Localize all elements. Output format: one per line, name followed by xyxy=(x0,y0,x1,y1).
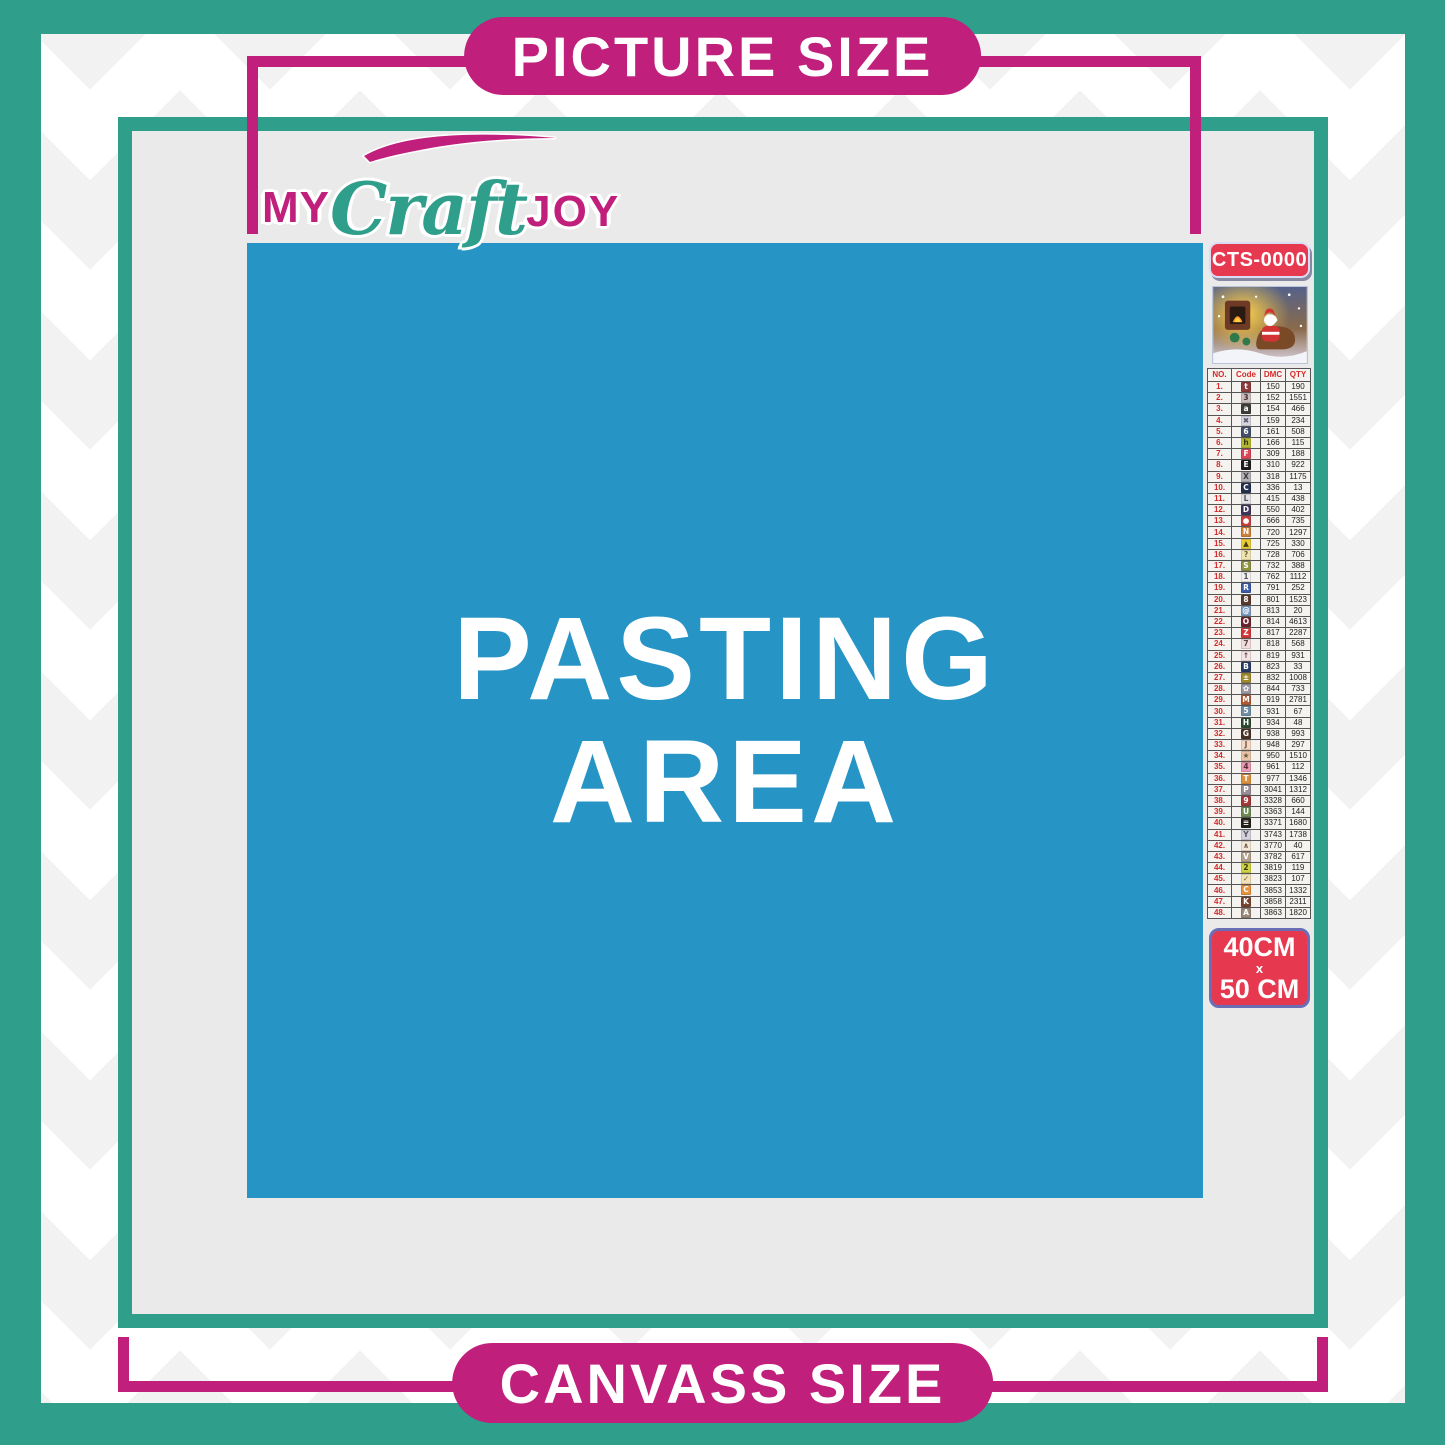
table-header-row: NO. Code DMC QTY xyxy=(1208,369,1311,382)
qty-value: 297 xyxy=(1286,740,1311,751)
qty-value: 1346 xyxy=(1286,773,1311,784)
row-number: 32. xyxy=(1208,728,1232,739)
qty-value: 466 xyxy=(1286,404,1311,415)
dmc-value: 801 xyxy=(1261,594,1286,605)
brand-logo: MYCraftJOY xyxy=(262,138,562,238)
symbol-chip: ± xyxy=(1241,673,1251,683)
code-cell: 5 xyxy=(1232,706,1261,717)
table-row: 48.A38631820 xyxy=(1208,907,1311,918)
dmc-value: 814 xyxy=(1261,616,1286,627)
dmc-value: 3041 xyxy=(1261,784,1286,795)
col-header-no: NO. xyxy=(1208,369,1232,382)
table-row: 7.F309188 xyxy=(1208,449,1311,460)
code-cell: 3 xyxy=(1232,393,1261,404)
row-number: 1. xyxy=(1208,382,1232,393)
code-cell: C xyxy=(1232,482,1261,493)
table-row: 6.h166115 xyxy=(1208,437,1311,448)
qty-value: 1738 xyxy=(1286,829,1311,840)
dmc-value: 728 xyxy=(1261,549,1286,560)
symbol-chip: C xyxy=(1241,483,1251,493)
symbol-chip: F xyxy=(1241,449,1251,459)
dmc-value: 336 xyxy=(1261,482,1286,493)
qty-value: 190 xyxy=(1286,382,1311,393)
code-cell: A xyxy=(1232,907,1261,918)
qty-value: 40 xyxy=(1286,840,1311,851)
dmc-value: 844 xyxy=(1261,684,1286,695)
symbol-chip: R xyxy=(1241,583,1251,593)
canvass-size-label: CANVASS SIZE xyxy=(452,1343,994,1423)
table-row: 41.Y37431738 xyxy=(1208,829,1311,840)
table-row: 18.17621112 xyxy=(1208,572,1311,583)
code-cell: L xyxy=(1232,493,1261,504)
row-number: 6. xyxy=(1208,437,1232,448)
row-number: 26. xyxy=(1208,661,1232,672)
qty-value: 188 xyxy=(1286,449,1311,460)
qty-value: 2781 xyxy=(1286,695,1311,706)
row-number: 48. xyxy=(1208,907,1232,918)
symbol-chip: U xyxy=(1241,807,1251,817)
qty-value: 115 xyxy=(1286,437,1311,448)
symbol-chip: B xyxy=(1241,662,1251,672)
dmc-value: 161 xyxy=(1261,426,1286,437)
code-cell: ∧ xyxy=(1232,840,1261,851)
code-cell: 1 xyxy=(1232,572,1261,583)
row-number: 20. xyxy=(1208,594,1232,605)
dmc-value: 720 xyxy=(1261,527,1286,538)
table-row: 43.V3782617 xyxy=(1208,851,1311,862)
logo-text-my: MY xyxy=(262,183,330,232)
row-number: 30. xyxy=(1208,706,1232,717)
code-cell: @ xyxy=(1232,605,1261,616)
qty-value: 1332 xyxy=(1286,885,1311,896)
qty-value: 48 xyxy=(1286,717,1311,728)
symbol-chip: A xyxy=(1241,908,1251,918)
dmc-value: 550 xyxy=(1261,505,1286,516)
row-number: 4. xyxy=(1208,415,1232,426)
table-row: 5.6161508 xyxy=(1208,426,1311,437)
size-separator-text: x xyxy=(1256,962,1263,975)
qty-value: 67 xyxy=(1286,706,1311,717)
row-number: 28. xyxy=(1208,684,1232,695)
dmc-value: 832 xyxy=(1261,672,1286,683)
canvas-size-badge: 40CM x 50 CM xyxy=(1209,928,1310,1008)
dmc-value: 977 xyxy=(1261,773,1286,784)
symbol-chip: G xyxy=(1241,729,1251,739)
dmc-value: 3363 xyxy=(1261,807,1286,818)
qty-value: 568 xyxy=(1286,639,1311,650)
qty-value: 4613 xyxy=(1286,616,1311,627)
dmc-value: 961 xyxy=(1261,762,1286,773)
code-cell: K xyxy=(1232,896,1261,907)
symbol-chip: ↑ xyxy=(1241,651,1251,661)
symbol-chip: 2 xyxy=(1241,863,1251,873)
qty-value: 330 xyxy=(1286,538,1311,549)
symbol-chip: C xyxy=(1241,885,1251,895)
code-cell: 4 xyxy=(1232,762,1261,773)
row-number: 17. xyxy=(1208,561,1232,572)
symbol-chip: Y xyxy=(1241,830,1251,840)
code-cell: 8 xyxy=(1232,594,1261,605)
design-preview-image xyxy=(1212,286,1308,364)
code-cell: M xyxy=(1232,695,1261,706)
code-cell: O xyxy=(1232,616,1261,627)
table-row: 34.★9501510 xyxy=(1208,751,1311,762)
code-cell: ● xyxy=(1232,516,1261,527)
dmc-value: 318 xyxy=(1261,471,1286,482)
code-cell: D xyxy=(1232,505,1261,516)
table-row: 2.31521551 xyxy=(1208,393,1311,404)
table-row: 26.B82333 xyxy=(1208,661,1311,672)
code-cell: t xyxy=(1232,382,1261,393)
row-number: 37. xyxy=(1208,784,1232,795)
code-cell: B xyxy=(1232,661,1261,672)
pasting-area: PASTING AREA xyxy=(247,243,1203,1198)
code-cell: H xyxy=(1232,717,1261,728)
table-row: 8.E310922 xyxy=(1208,460,1311,471)
dmc-value: 3819 xyxy=(1261,863,1286,874)
qty-value: 617 xyxy=(1286,851,1311,862)
code-cell: N xyxy=(1232,527,1261,538)
row-number: 23. xyxy=(1208,628,1232,639)
dmc-color-table: NO. Code DMC QTY 1.t1501902.315215513.a1… xyxy=(1207,368,1311,919)
table-row: 21.@81320 xyxy=(1208,605,1311,616)
code-cell: 9 xyxy=(1232,795,1261,806)
dmc-value: 415 xyxy=(1261,493,1286,504)
code-cell: ✓ xyxy=(1232,874,1261,885)
sku-text: CTS-0000 xyxy=(1212,249,1307,272)
dmc-value: 725 xyxy=(1261,538,1286,549)
code-cell: ✿ xyxy=(1232,684,1261,695)
code-cell: 7 xyxy=(1232,639,1261,650)
code-cell: ≡ xyxy=(1232,818,1261,829)
qty-value: 438 xyxy=(1286,493,1311,504)
symbol-chip: S xyxy=(1241,561,1251,571)
dmc-value: 3371 xyxy=(1261,818,1286,829)
table-row: 36.T9771346 xyxy=(1208,773,1311,784)
symbol-chip: E xyxy=(1241,460,1251,470)
symbol-chip: J xyxy=(1241,740,1251,750)
row-number: 44. xyxy=(1208,863,1232,874)
table-row: 19.R791252 xyxy=(1208,583,1311,594)
dmc-value: 666 xyxy=(1261,516,1286,527)
symbol-chip: ✿ xyxy=(1241,684,1251,694)
table-row: 20.88011523 xyxy=(1208,594,1311,605)
symbol-chip: ∧ xyxy=(1241,841,1251,851)
size-height-text: 50 CM xyxy=(1220,976,1300,1003)
dmc-value: 3770 xyxy=(1261,840,1286,851)
dmc-value: 950 xyxy=(1261,751,1286,762)
code-cell: 2 xyxy=(1232,863,1261,874)
dmc-value: 3328 xyxy=(1261,795,1286,806)
qty-value: 33 xyxy=(1286,661,1311,672)
qty-value: 107 xyxy=(1286,874,1311,885)
qty-value: 508 xyxy=(1286,426,1311,437)
dmc-value: 818 xyxy=(1261,639,1286,650)
symbol-chip: 6 xyxy=(1241,427,1251,437)
qty-value: 252 xyxy=(1286,583,1311,594)
symbol-chip: H xyxy=(1241,718,1251,728)
table-row: 3.a154466 xyxy=(1208,404,1311,415)
dmc-value: 310 xyxy=(1261,460,1286,471)
symbol-chip: K xyxy=(1241,897,1251,907)
table-row: 32.G938993 xyxy=(1208,728,1311,739)
qty-value: 119 xyxy=(1286,863,1311,874)
qty-value: 733 xyxy=(1286,684,1311,695)
qty-value: 2311 xyxy=(1286,896,1311,907)
table-row: 16.?728706 xyxy=(1208,549,1311,560)
table-row: 17.S732388 xyxy=(1208,561,1311,572)
row-number: 22. xyxy=(1208,616,1232,627)
row-number: 41. xyxy=(1208,829,1232,840)
row-number: 42. xyxy=(1208,840,1232,851)
dmc-value: 938 xyxy=(1261,728,1286,739)
table-row: 29.M9192781 xyxy=(1208,695,1311,706)
dmc-value: 3782 xyxy=(1261,851,1286,862)
code-cell: a xyxy=(1232,404,1261,415)
code-cell: ★ xyxy=(1232,751,1261,762)
table-row: 39.U3363144 xyxy=(1208,807,1311,818)
table-row: 31.H93448 xyxy=(1208,717,1311,728)
code-cell: J xyxy=(1232,740,1261,751)
dmc-value: 817 xyxy=(1261,628,1286,639)
dmc-value: 3863 xyxy=(1261,907,1286,918)
table-row: 38.93328660 xyxy=(1208,795,1311,806)
symbol-chip: L xyxy=(1241,494,1251,504)
row-number: 40. xyxy=(1208,818,1232,829)
size-width-text: 40CM xyxy=(1223,934,1295,961)
canvass-size-bracket-left-tick xyxy=(118,1337,129,1392)
row-number: 9. xyxy=(1208,471,1232,482)
dmc-value: 819 xyxy=(1261,650,1286,661)
symbol-chip: M xyxy=(1241,695,1251,705)
symbol-chip: a xyxy=(1241,404,1251,414)
qty-value: 1175 xyxy=(1286,471,1311,482)
code-cell: U xyxy=(1232,807,1261,818)
code-cell: E xyxy=(1232,460,1261,471)
dmc-value: 732 xyxy=(1261,561,1286,572)
symbol-chip: Z xyxy=(1241,628,1251,638)
symbol-chip: 1 xyxy=(1241,572,1251,582)
symbol-chip: ● xyxy=(1241,516,1251,526)
logo-text-craft: Craft xyxy=(330,166,526,251)
table-row: 11.L415438 xyxy=(1208,493,1311,504)
table-row: 44.23819119 xyxy=(1208,863,1311,874)
code-cell: C xyxy=(1232,885,1261,896)
table-row: 27.±8321008 xyxy=(1208,672,1311,683)
table-row: 45.✓3823107 xyxy=(1208,874,1311,885)
row-number: 12. xyxy=(1208,505,1232,516)
dmc-value: 166 xyxy=(1261,437,1286,448)
qty-value: 1297 xyxy=(1286,527,1311,538)
sku-badge: CTS-0000 xyxy=(1209,242,1310,278)
col-header-code: Code xyxy=(1232,369,1261,382)
table-row: 4.✖159234 xyxy=(1208,415,1311,426)
table-row: 1.t150190 xyxy=(1208,382,1311,393)
row-number: 39. xyxy=(1208,807,1232,818)
table-row: 10.C33613 xyxy=(1208,482,1311,493)
code-cell: Y xyxy=(1232,829,1261,840)
table-row: 42.∧377040 xyxy=(1208,840,1311,851)
row-number: 36. xyxy=(1208,773,1232,784)
table-row: 46.C38531332 xyxy=(1208,885,1311,896)
qty-value: 388 xyxy=(1286,561,1311,572)
dmc-value: 3853 xyxy=(1261,885,1286,896)
code-cell: R xyxy=(1232,583,1261,594)
dmc-value: 762 xyxy=(1261,572,1286,583)
picture-size-text: PICTURE SIZE xyxy=(512,24,934,89)
table-row: 24.7818568 xyxy=(1208,639,1311,650)
qty-value: 1680 xyxy=(1286,818,1311,829)
code-cell: G xyxy=(1232,728,1261,739)
dmc-value: 309 xyxy=(1261,449,1286,460)
canvass-size-text: CANVASS SIZE xyxy=(500,1351,946,1416)
table-row: 30.593167 xyxy=(1208,706,1311,717)
dmc-value: 152 xyxy=(1261,393,1286,404)
table-row: 23.Z8172287 xyxy=(1208,628,1311,639)
qty-value: 1112 xyxy=(1286,572,1311,583)
symbol-chip: ≡ xyxy=(1241,818,1251,828)
dmc-value: 948 xyxy=(1261,740,1286,751)
row-number: 15. xyxy=(1208,538,1232,549)
row-number: 7. xyxy=(1208,449,1232,460)
dmc-value: 3823 xyxy=(1261,874,1286,885)
qty-value: 706 xyxy=(1286,549,1311,560)
qty-value: 144 xyxy=(1286,807,1311,818)
row-number: 16. xyxy=(1208,549,1232,560)
dmc-value: 823 xyxy=(1261,661,1286,672)
row-number: 10. xyxy=(1208,482,1232,493)
qty-value: 735 xyxy=(1286,516,1311,527)
row-number: 29. xyxy=(1208,695,1232,706)
santa-sleigh-preview-icon xyxy=(1213,287,1307,363)
qty-value: 993 xyxy=(1286,728,1311,739)
symbol-chip: @ xyxy=(1241,606,1251,616)
table-row: 35.4961112 xyxy=(1208,762,1311,773)
brush-swoosh-icon xyxy=(360,122,560,170)
pasting-area-line1: PASTING xyxy=(453,598,997,721)
dmc-value: 154 xyxy=(1261,404,1286,415)
qty-value: 1523 xyxy=(1286,594,1311,605)
row-number: 21. xyxy=(1208,605,1232,616)
row-number: 43. xyxy=(1208,851,1232,862)
symbol-chip: P xyxy=(1241,785,1251,795)
row-number: 25. xyxy=(1208,650,1232,661)
dmc-value: 919 xyxy=(1261,695,1286,706)
table-row: 25.↑819931 xyxy=(1208,650,1311,661)
qty-value: 112 xyxy=(1286,762,1311,773)
code-cell: ? xyxy=(1232,549,1261,560)
symbol-chip: 3 xyxy=(1241,393,1251,403)
row-number: 14. xyxy=(1208,527,1232,538)
symbol-chip: 5 xyxy=(1241,706,1251,716)
row-number: 33. xyxy=(1208,740,1232,751)
qty-value: 922 xyxy=(1286,460,1311,471)
dmc-value: 934 xyxy=(1261,717,1286,728)
qty-value: 402 xyxy=(1286,505,1311,516)
row-number: 5. xyxy=(1208,426,1232,437)
code-cell: T xyxy=(1232,773,1261,784)
qty-value: 2287 xyxy=(1286,628,1311,639)
dmc-value: 159 xyxy=(1261,415,1286,426)
table-row: 14.N7201297 xyxy=(1208,527,1311,538)
table-row: 9.X3181175 xyxy=(1208,471,1311,482)
picture-size-label: PICTURE SIZE xyxy=(464,17,982,95)
qty-value: 931 xyxy=(1286,650,1311,661)
row-number: 2. xyxy=(1208,393,1232,404)
symbol-chip: N xyxy=(1241,527,1251,537)
canvass-size-bracket-right-tick xyxy=(1317,1337,1328,1392)
table-row: 28.✿844733 xyxy=(1208,684,1311,695)
code-cell: F xyxy=(1232,449,1261,460)
qty-value: 234 xyxy=(1286,415,1311,426)
col-header-qty: QTY xyxy=(1286,369,1311,382)
col-header-dmc: DMC xyxy=(1261,369,1286,382)
row-number: 35. xyxy=(1208,762,1232,773)
table-row: 22.O8144613 xyxy=(1208,616,1311,627)
qty-value: 1312 xyxy=(1286,784,1311,795)
symbol-chip: X xyxy=(1241,472,1251,482)
qty-value: 20 xyxy=(1286,605,1311,616)
symbol-chip: 4 xyxy=(1241,762,1251,772)
row-number: 11. xyxy=(1208,493,1232,504)
table-row: 15.▲725330 xyxy=(1208,538,1311,549)
code-cell: P xyxy=(1232,784,1261,795)
code-cell: h xyxy=(1232,437,1261,448)
row-number: 47. xyxy=(1208,896,1232,907)
picture-size-bracket-right-tick xyxy=(1190,56,1201,234)
row-number: 24. xyxy=(1208,639,1232,650)
symbol-chip: V xyxy=(1241,852,1251,862)
symbol-chip: O xyxy=(1241,617,1251,627)
row-number: 31. xyxy=(1208,717,1232,728)
pasting-area-line2: AREA xyxy=(550,721,900,844)
row-number: 13. xyxy=(1208,516,1232,527)
code-cell: ± xyxy=(1232,672,1261,683)
symbol-chip: T xyxy=(1241,774,1251,784)
symbol-chip: ✖ xyxy=(1241,416,1251,426)
table-row: 33.J948297 xyxy=(1208,740,1311,751)
code-cell: Z xyxy=(1232,628,1261,639)
symbol-chip: ★ xyxy=(1241,751,1251,761)
row-number: 18. xyxy=(1208,572,1232,583)
code-cell: X xyxy=(1232,471,1261,482)
row-number: 46. xyxy=(1208,885,1232,896)
row-number: 3. xyxy=(1208,404,1232,415)
row-number: 8. xyxy=(1208,460,1232,471)
qty-value: 1551 xyxy=(1286,393,1311,404)
dmc-value: 931 xyxy=(1261,706,1286,717)
code-cell: V xyxy=(1232,851,1261,862)
code-cell: S xyxy=(1232,561,1261,572)
symbol-chip: D xyxy=(1241,505,1251,515)
symbol-chip: t xyxy=(1241,382,1251,392)
legend-table-body: 1.t1501902.315215513.a1544664.✖1592345.6… xyxy=(1208,382,1311,919)
table-row: 47.K38582311 xyxy=(1208,896,1311,907)
symbol-chip: h xyxy=(1241,438,1251,448)
code-cell: ▲ xyxy=(1232,538,1261,549)
dmc-value: 3858 xyxy=(1261,896,1286,907)
table-row: 37.P30411312 xyxy=(1208,784,1311,795)
symbol-chip: ✓ xyxy=(1241,874,1251,884)
symbol-chip: 7 xyxy=(1241,639,1251,649)
row-number: 19. xyxy=(1208,583,1232,594)
table-row: 40.≡33711680 xyxy=(1208,818,1311,829)
qty-value: 660 xyxy=(1286,795,1311,806)
qty-value: 1820 xyxy=(1286,907,1311,918)
symbol-chip: 8 xyxy=(1241,595,1251,605)
row-number: 34. xyxy=(1208,751,1232,762)
symbol-chip: ▲ xyxy=(1241,539,1251,549)
